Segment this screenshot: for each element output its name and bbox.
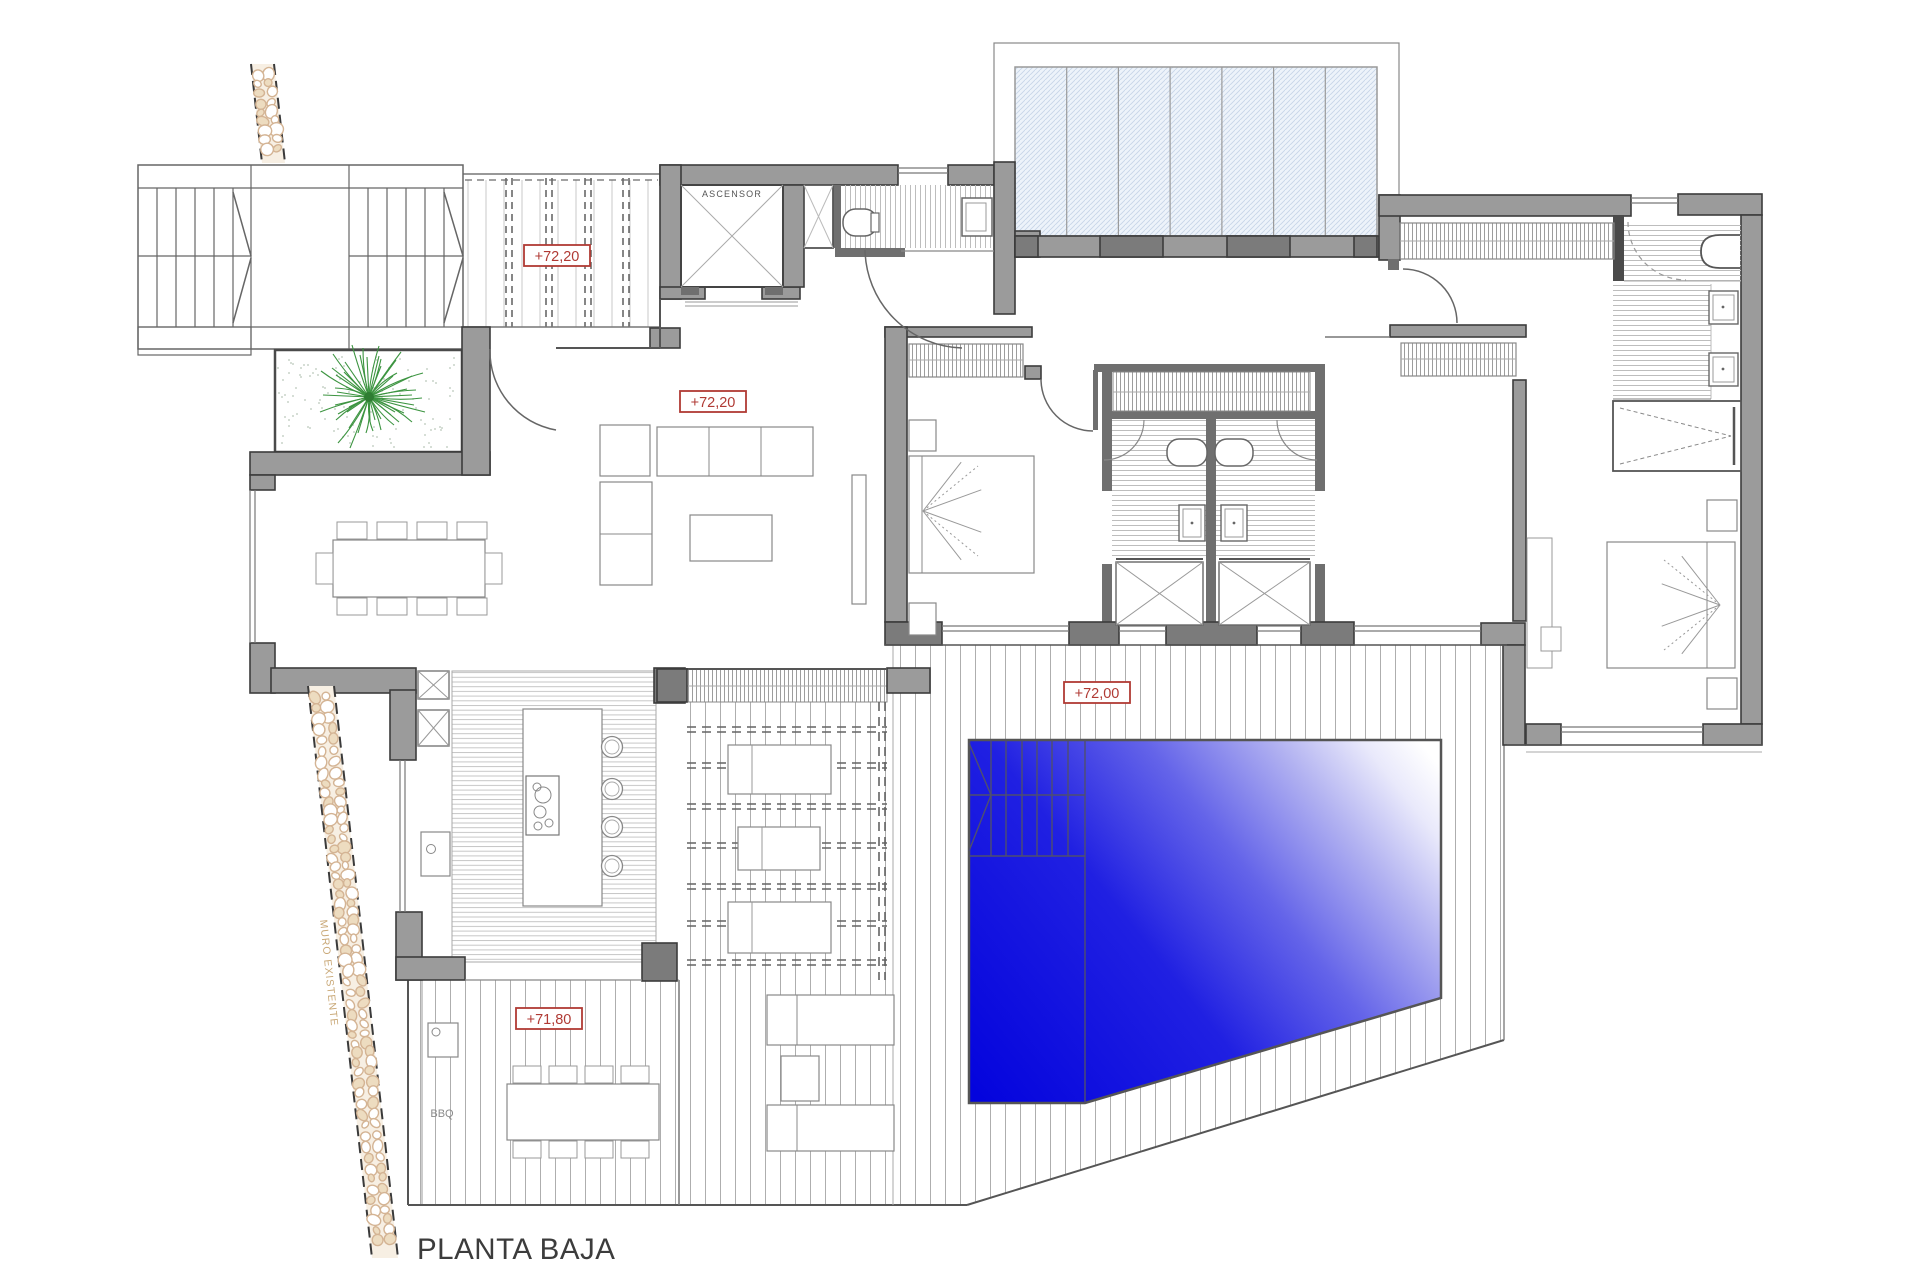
svg-text:+71,80: +71,80	[527, 1012, 572, 1028]
svg-text:BBQ: BBQ	[430, 1108, 454, 1120]
svg-text:+72,20: +72,20	[691, 395, 736, 411]
svg-text:+72,00: +72,00	[1075, 686, 1120, 702]
svg-text:+72,20: +72,20	[535, 249, 580, 265]
svg-text:ASCENSOR: ASCENSOR	[702, 189, 762, 199]
svg-text:PLANTA BAJA: PLANTA BAJA	[417, 1233, 615, 1266]
